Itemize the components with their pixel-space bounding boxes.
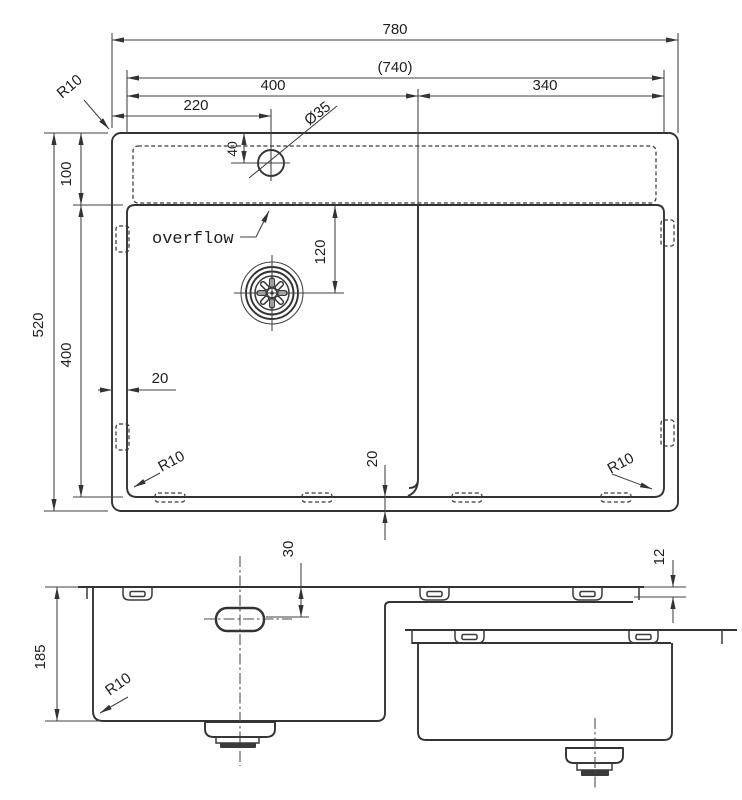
radius-callout-front-bowl: R10: [100, 670, 135, 713]
radius-callout-outer: R10: [54, 71, 109, 129]
dim-faucet-offset-y-40: 40: [224, 133, 263, 163]
technical-drawing-page: 780 (740) 400 340 220 Ø35 40: [0, 0, 742, 800]
radius-callout-bowl-right: R10: [605, 450, 652, 489]
svg-text:400: 400: [58, 342, 75, 367]
svg-text:100: 100: [58, 161, 75, 186]
svg-text:R10: R10: [155, 448, 187, 476]
dim-rim-height-12: 12: [634, 549, 686, 623]
svg-text:185: 185: [32, 644, 49, 669]
svg-text:overflow: overflow: [152, 230, 234, 249]
dim-right-section-width-340: 340: [418, 77, 664, 96]
svg-text:R10: R10: [102, 670, 134, 700]
right-bowl-profile: [418, 643, 672, 740]
svg-text:(740): (740): [377, 59, 412, 76]
svg-text:20: 20: [364, 451, 381, 468]
svg-text:220: 220: [183, 97, 208, 114]
dim-overall-depth-520: 520: [30, 133, 108, 511]
svg-text:400: 400: [260, 77, 285, 94]
bowl-divider: [408, 205, 418, 496]
overflow-callout: overflow: [152, 211, 269, 249]
svg-text:520: 520: [30, 312, 47, 337]
dim-bowl-depth-185: 185: [32, 587, 100, 721]
dim-left-bowl-width-400: 400: [127, 77, 418, 96]
dim-faucet-diameter: Ø35: [301, 98, 334, 129]
top-view: 780 (740) 400 340 220 Ø35 40: [30, 21, 678, 540]
svg-text:30: 30: [280, 541, 297, 558]
dim-hole-depth-30: 30: [266, 541, 309, 617]
radius-callout-bowl-left: R10: [134, 448, 188, 487]
svg-text:40: 40: [224, 141, 240, 157]
main-bowl-profile: [93, 587, 633, 721]
svg-text:780: 780: [382, 21, 407, 38]
svg-text:340: 340: [532, 77, 557, 94]
svg-text:20: 20: [152, 370, 169, 387]
dim-faucet-offset-220: 220: [112, 97, 271, 116]
svg-text:12: 12: [651, 549, 668, 566]
svg-text:120: 120: [312, 239, 329, 264]
svg-text:R10: R10: [54, 71, 86, 102]
sink-drawing-svg: 780 (740) 400 340 220 Ø35 40: [0, 0, 742, 800]
deck-ledge-dashed: [133, 146, 656, 203]
dim-bottom-gap-20: 20: [364, 451, 385, 540]
drain-strainer: [234, 255, 310, 331]
dim-bowl-front-depth-400: 400: [58, 205, 123, 497]
svg-text:R10: R10: [605, 450, 637, 478]
front-view-main-bowl: 185 30 R10 12: [32, 541, 686, 766]
section-view-right-bowl: [405, 630, 737, 790]
svg-text:Ø35: Ø35: [301, 98, 334, 129]
dim-side-gap-20: 20: [98, 370, 176, 390]
mounting-clips-top-view: [116, 220, 674, 502]
sink-outer-outline: [112, 133, 678, 511]
dim-drain-offset-120: 120: [304, 206, 344, 293]
